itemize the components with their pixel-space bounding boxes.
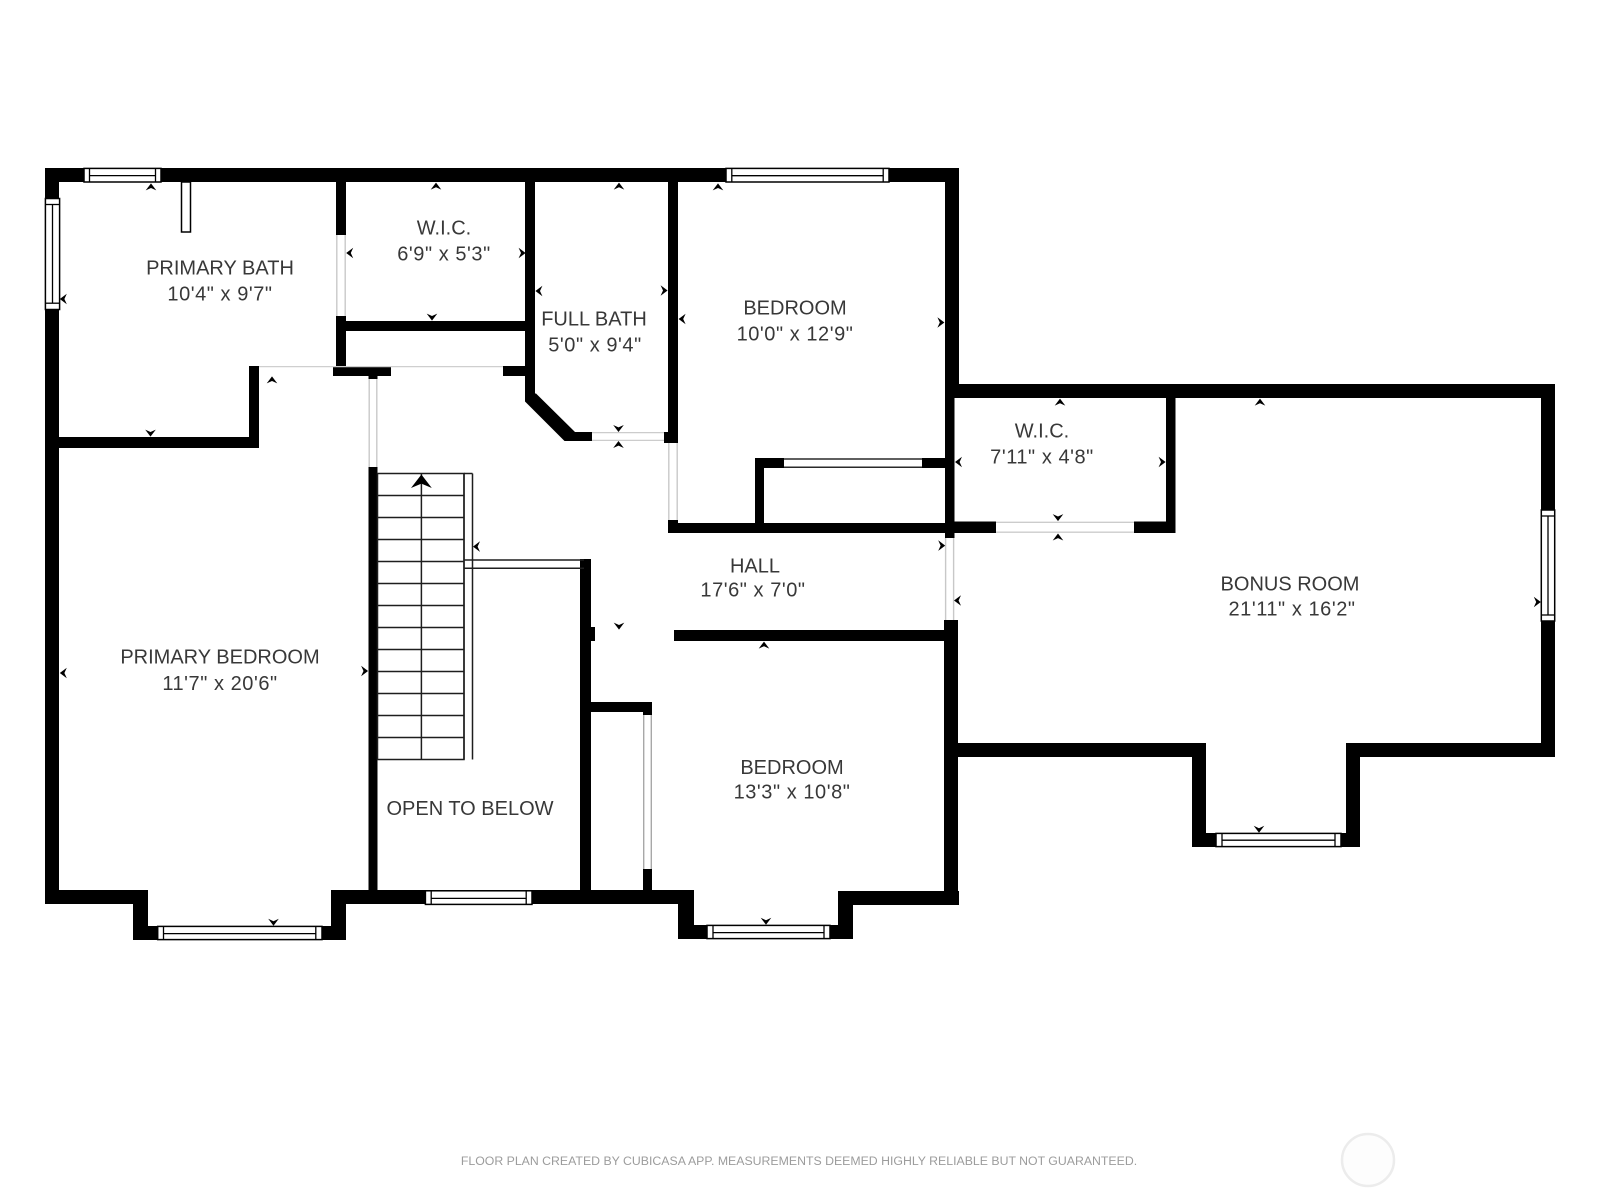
svg-text:BEDROOM: BEDROOM	[743, 298, 846, 320]
svg-text:HALL: HALL	[730, 556, 780, 578]
svg-text:6'9" x 5'3": 6'9" x 5'3"	[397, 244, 491, 266]
svg-text:7'11" x 4'8": 7'11" x 4'8"	[990, 447, 1094, 469]
svg-text:PRIMARY BEDROOM: PRIMARY BEDROOM	[120, 647, 319, 669]
svg-text:BONUS ROOM: BONUS ROOM	[1221, 574, 1360, 596]
svg-text:OPEN TO BELOW: OPEN TO BELOW	[386, 798, 553, 820]
svg-text:21'11" x 16'2": 21'11" x 16'2"	[1228, 599, 1355, 621]
svg-text:11'7" x 20'6": 11'7" x 20'6"	[162, 673, 277, 695]
svg-text:FLOOR PLAN CREATED BY CUBICASA: FLOOR PLAN CREATED BY CUBICASA APP. MEAS…	[461, 1154, 1137, 1168]
svg-text:10'0" x 12'9": 10'0" x 12'9"	[737, 324, 854, 346]
svg-text:10'4" x 9'7": 10'4" x 9'7"	[167, 284, 272, 306]
svg-text:5'0" x 9'4": 5'0" x 9'4"	[548, 335, 642, 357]
svg-text:13'3" x 10'8": 13'3" x 10'8"	[734, 782, 851, 804]
svg-text:W.I.C.: W.I.C.	[1015, 421, 1069, 443]
svg-text:BEDROOM: BEDROOM	[740, 757, 843, 779]
svg-text:W.I.C.: W.I.C.	[417, 218, 471, 240]
svg-text:17'6" x 7'0": 17'6" x 7'0"	[700, 580, 805, 602]
svg-text:PRIMARY BATH: PRIMARY BATH	[146, 258, 294, 280]
svg-text:FULL BATH: FULL BATH	[541, 309, 647, 331]
